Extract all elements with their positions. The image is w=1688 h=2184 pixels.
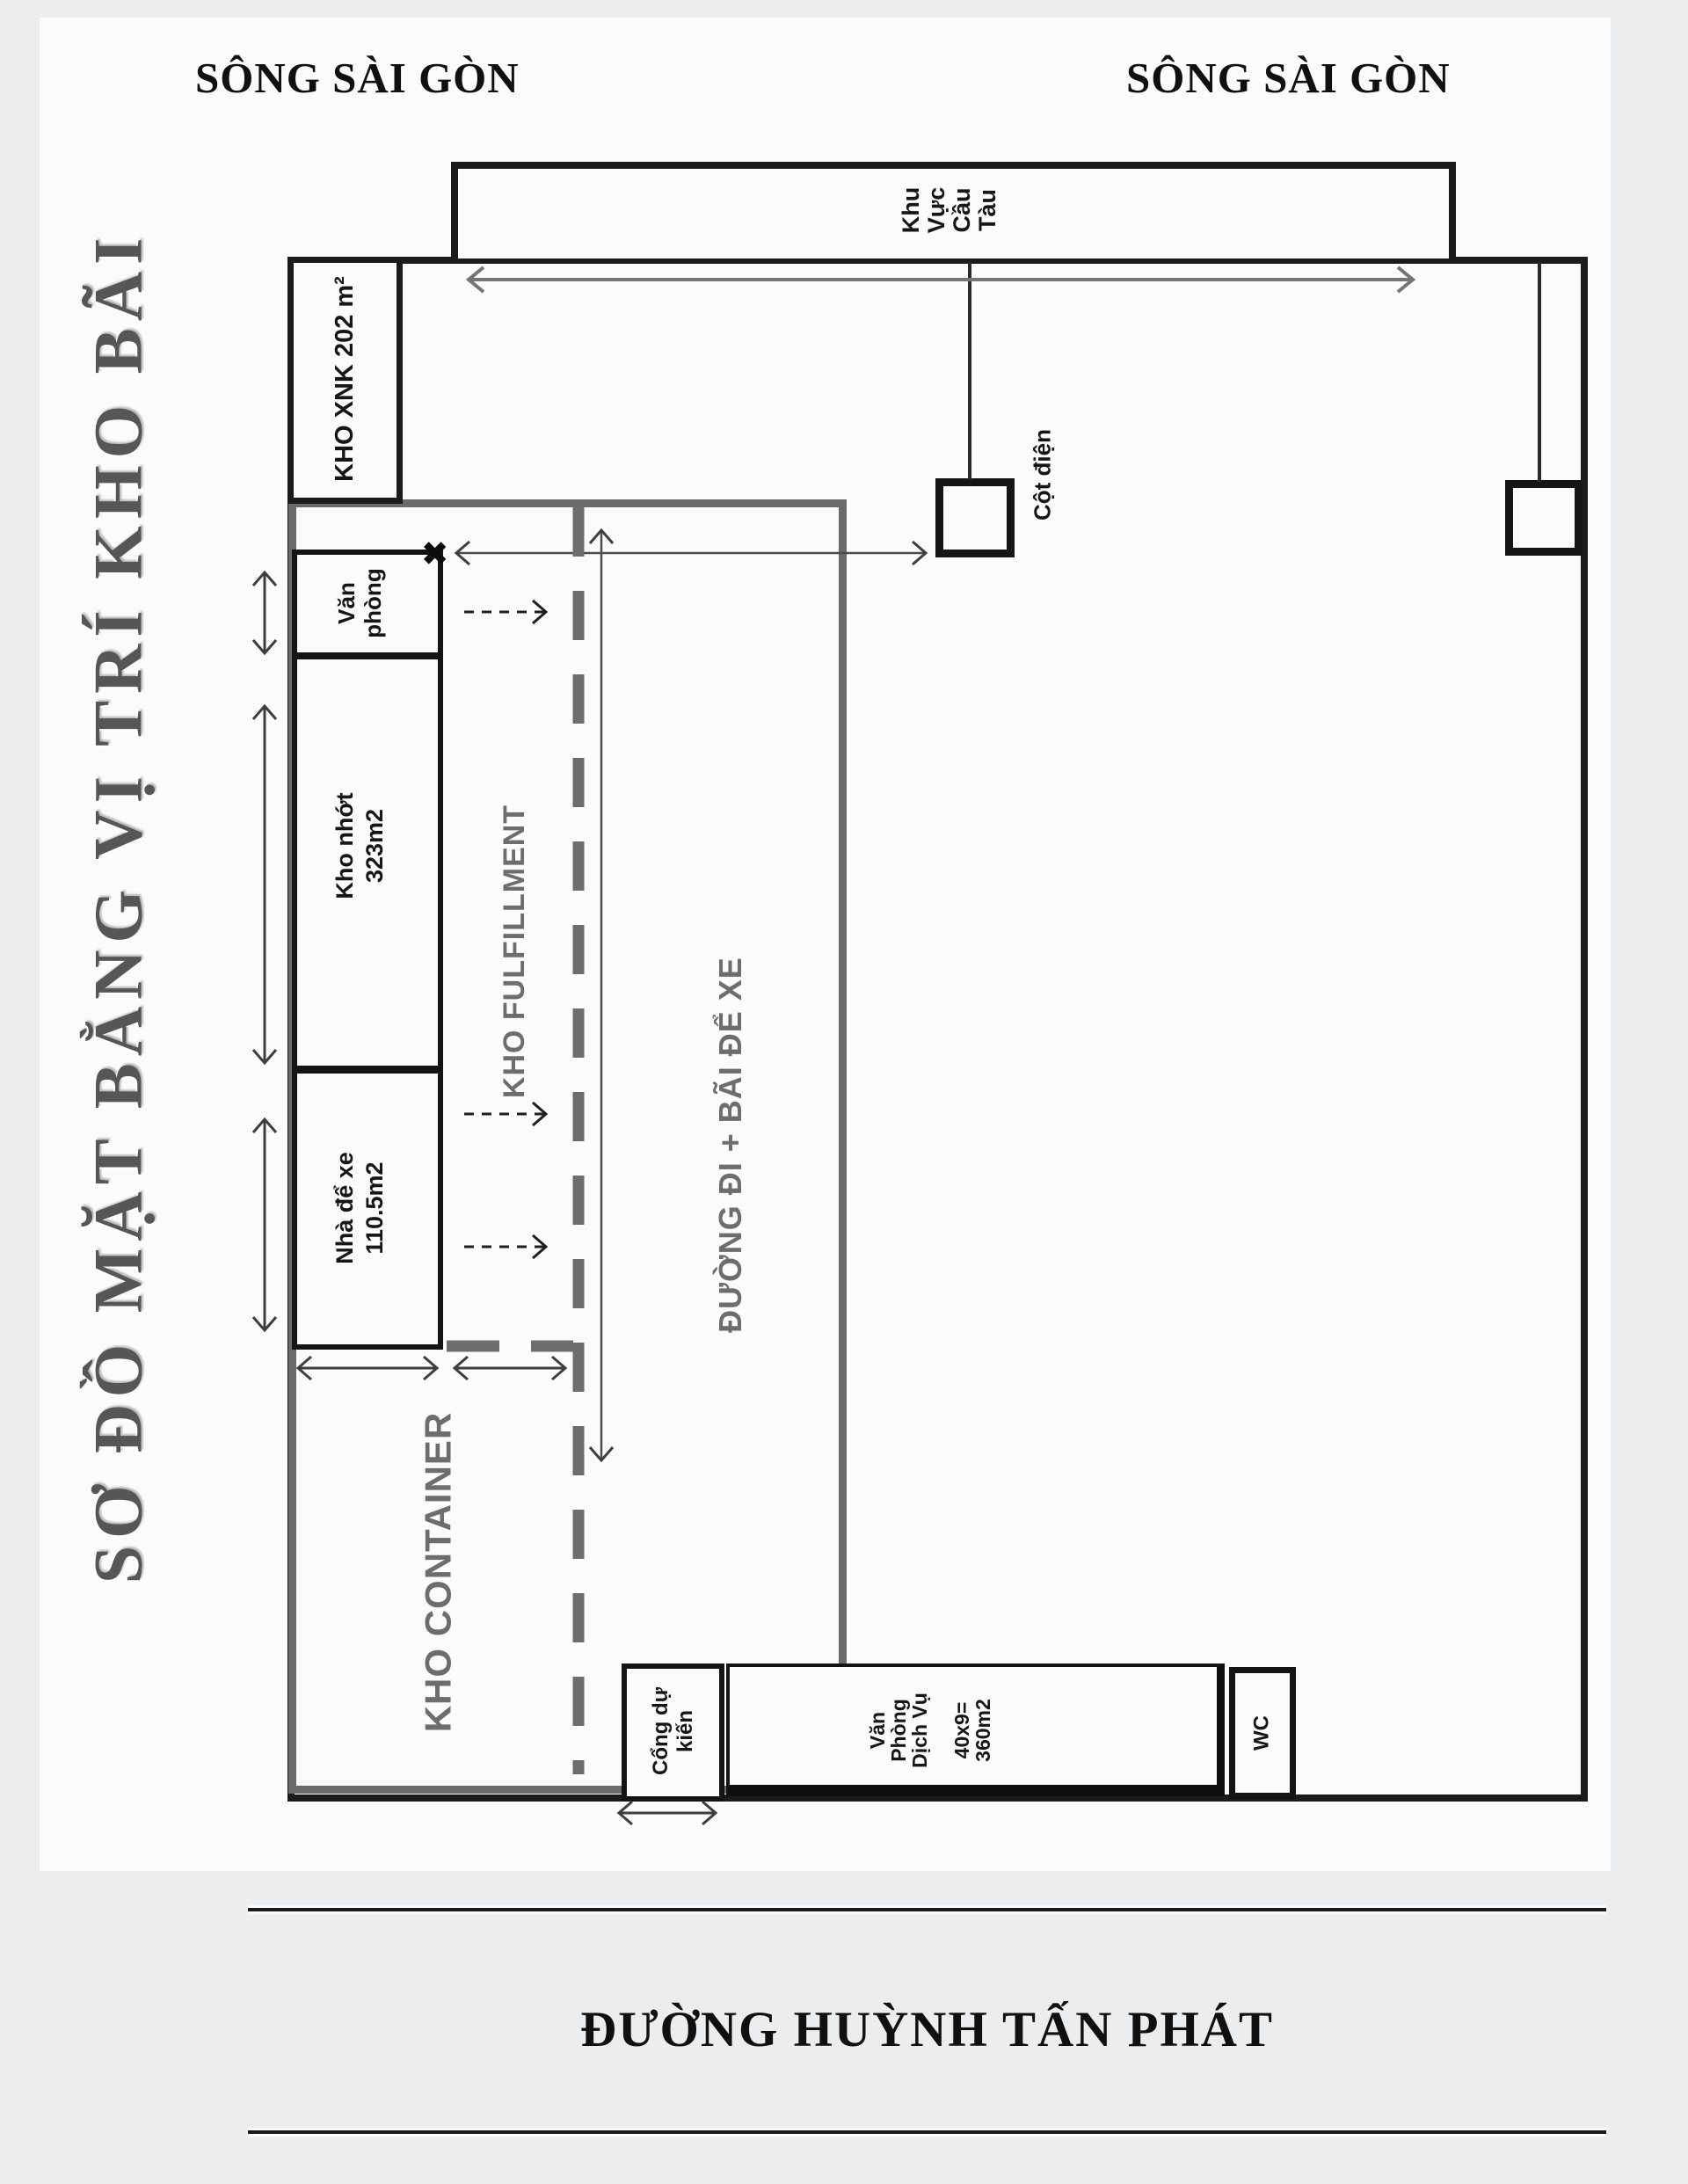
power-pole-square-left bbox=[935, 478, 1015, 557]
kho-fulfillment-label: KHO FULFILLMENT bbox=[498, 804, 531, 1098]
page-title: SƠ ĐỒ MẶT BẰNG VỊ TRÍ KHO BÃI bbox=[79, 231, 156, 1584]
wharf-area-label: Khu Vực Cầu Tàu bbox=[899, 187, 1000, 234]
river-label-right: SÔNG SÀI GÒN bbox=[1126, 53, 1451, 103]
kho-nhot-label: Kho nhớt 323m2 bbox=[330, 792, 389, 899]
site-plan-document: { "title": { "text": "SƠ ĐỒ MẶT BẰNG VỊ … bbox=[0, 0, 1688, 2184]
cot-dien-label: Cột điện bbox=[1030, 429, 1055, 521]
road-lower-line bbox=[248, 2130, 1606, 2134]
road-label: ĐƯỜNG HUỲNH TẤN PHÁT bbox=[248, 2001, 1606, 2058]
nha-de-xe-label: Nhà để xe 110.5m2 bbox=[330, 1152, 389, 1264]
kho-container-label: KHO CONTAINER bbox=[417, 1412, 458, 1733]
power-pole-square-right bbox=[1505, 480, 1582, 556]
road-upper-line bbox=[248, 1908, 1606, 1911]
x-marker-icon: ✖ bbox=[418, 539, 456, 567]
cong-du-kien-label: Cổng dự kiến bbox=[649, 1687, 698, 1775]
van-phong-dich-vu-label: Văn Phòng Dịch Vụ 40x9= 360m2 bbox=[867, 1693, 993, 1768]
duong-di-label: ĐƯỜNG ĐI + BÃI ĐỂ XE bbox=[713, 957, 748, 1333]
van-phong-label: Văn phòng bbox=[333, 568, 386, 637]
kho-xnk-label: KHO XNK 202 m² bbox=[331, 276, 359, 482]
wc-label: WC bbox=[1251, 1715, 1275, 1751]
river-label-left: SÔNG SÀI GÒN bbox=[195, 53, 520, 103]
